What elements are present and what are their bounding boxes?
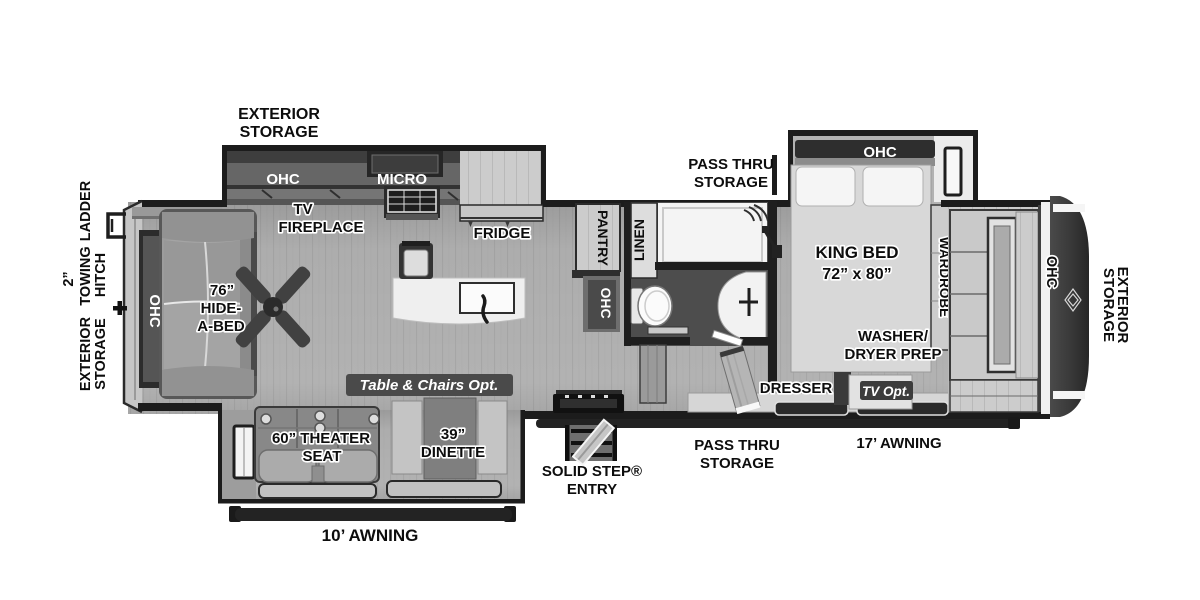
svg-text:STORAGE: STORAGE <box>93 318 109 390</box>
svg-text:MICRO: MICRO <box>377 171 427 188</box>
svg-text:HIDE-: HIDE- <box>201 300 242 317</box>
svg-text:HITCH: HITCH <box>93 253 109 297</box>
svg-text:OHC: OHC <box>266 171 300 188</box>
svg-text:60” THEATER: 60” THEATER <box>272 430 370 447</box>
svg-text:OHC: OHC <box>598 287 614 318</box>
svg-text:LINEN: LINEN <box>631 219 647 261</box>
svg-text:72” x 80”: 72” x 80” <box>822 266 891 283</box>
svg-text:LADDER: LADDER <box>78 180 94 241</box>
svg-text:TOWING: TOWING <box>78 246 94 305</box>
svg-text:SEAT: SEAT <box>303 448 342 465</box>
svg-text:A-BED: A-BED <box>197 318 245 335</box>
svg-text:EXTERIOR: EXTERIOR <box>238 106 320 123</box>
svg-text:PANTRY: PANTRY <box>595 210 611 267</box>
svg-text:39”: 39” <box>441 426 465 443</box>
svg-text:STORAGE: STORAGE <box>694 174 768 191</box>
svg-text:17’ AWNING: 17’ AWNING <box>856 435 941 452</box>
svg-text:DRYER PREP: DRYER PREP <box>845 346 942 363</box>
svg-text:FIREPLACE: FIREPLACE <box>278 219 363 236</box>
svg-text:STORAGE: STORAGE <box>700 455 774 472</box>
svg-text:76”: 76” <box>210 282 234 299</box>
svg-text:STORAGE: STORAGE <box>240 124 319 141</box>
svg-text:OHC: OHC <box>1043 256 1059 289</box>
svg-text:STORAGE: STORAGE <box>1100 268 1117 342</box>
svg-text:TV: TV <box>293 201 312 218</box>
svg-text:PASS THRU: PASS THRU <box>688 156 774 173</box>
svg-text:Table & Chairs Opt.: Table & Chairs Opt. <box>360 377 499 394</box>
svg-text:OHC: OHC <box>146 294 163 328</box>
svg-text:10’ AWNING: 10’ AWNING <box>322 526 419 545</box>
svg-text:OHC: OHC <box>863 144 897 161</box>
svg-text:DINETTE: DINETTE <box>421 444 485 461</box>
svg-text:SOLID STEP®: SOLID STEP® <box>542 463 642 480</box>
svg-text:FRIDGE: FRIDGE <box>474 225 531 242</box>
svg-text:ENTRY: ENTRY <box>567 481 617 498</box>
svg-text:EXTERIOR: EXTERIOR <box>78 316 94 391</box>
svg-text:PASS THRU: PASS THRU <box>694 437 780 454</box>
svg-text:WASHER/: WASHER/ <box>858 328 929 345</box>
svg-text:KING BED: KING BED <box>815 243 898 262</box>
svg-text:TV Opt.: TV Opt. <box>862 384 910 399</box>
svg-text:DRESSER: DRESSER <box>760 380 833 397</box>
svg-text:2”: 2” <box>61 271 77 286</box>
